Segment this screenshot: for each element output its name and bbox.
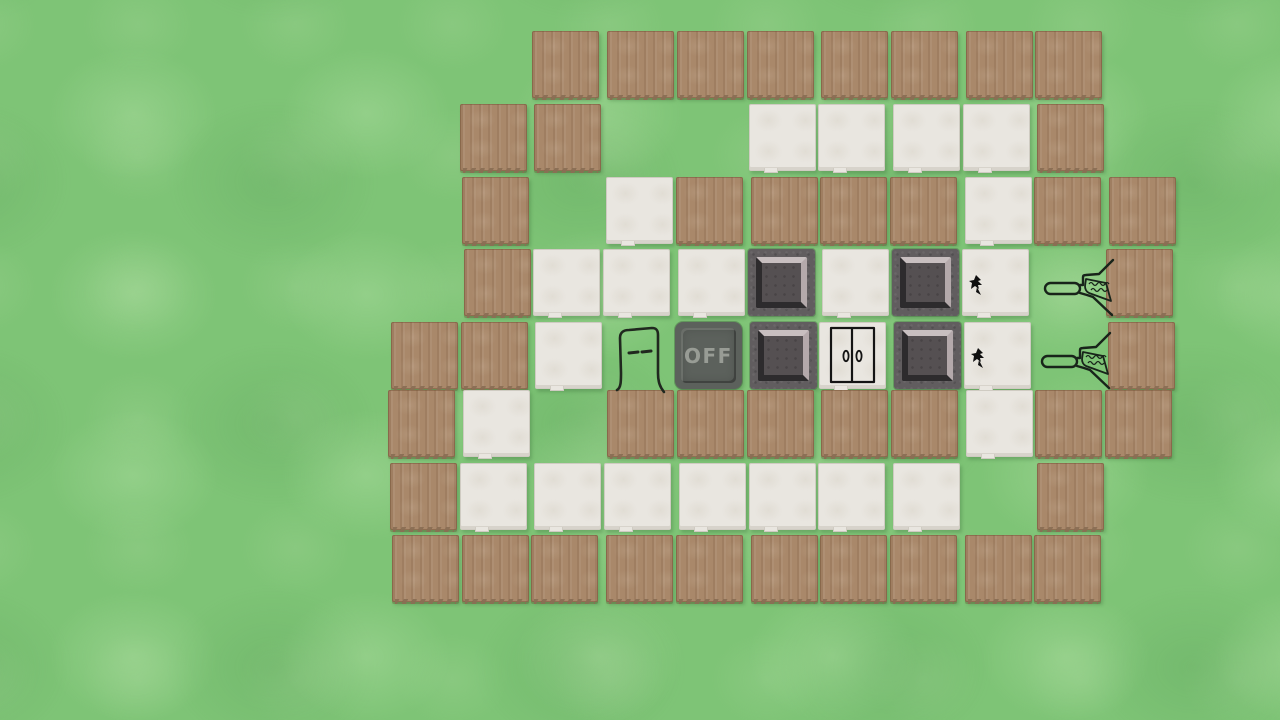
wood-tile: [534, 104, 601, 171]
wood-tile: [751, 535, 818, 602]
wood-tile: [1037, 104, 1104, 171]
player-sprite-svg: [614, 323, 666, 397]
wood-tile: [391, 322, 458, 389]
wood-tile: [1109, 177, 1176, 244]
wood-tile: [890, 535, 957, 602]
wood-tile: [747, 390, 814, 457]
wood-tile: [1108, 322, 1175, 389]
plate-tile[interactable]: [748, 249, 815, 316]
off-button-tile[interactable]: OFF: [675, 322, 742, 389]
wood-tile: [965, 535, 1032, 602]
floor-tile: [749, 463, 816, 530]
wood-tile: [464, 249, 531, 316]
floor-tile: [893, 463, 960, 530]
wood-tile: [676, 535, 743, 602]
floor-tile: [533, 249, 600, 316]
wood-tile: [532, 31, 599, 98]
game-board: OFF: [0, 0, 1280, 720]
floor-tile: [606, 177, 673, 244]
floor-tile: [965, 177, 1032, 244]
wood-tile: [461, 322, 528, 389]
wood-tile: [607, 31, 674, 98]
floor-tile: [963, 104, 1030, 171]
wood-tile: [460, 104, 527, 171]
wood-tile: [1037, 463, 1104, 530]
wood-tile: [1105, 390, 1172, 457]
double-door-icon[interactable]: [819, 322, 886, 389]
wood-tile: [821, 31, 888, 98]
floor-tile: [460, 463, 527, 530]
plate-tile[interactable]: [894, 322, 961, 389]
wood-tile: [820, 535, 887, 602]
bug-sprite-svg: [969, 275, 985, 297]
wood-tile: [606, 535, 673, 602]
floor-tile: [818, 104, 885, 171]
floor-tile: [822, 249, 889, 316]
wood-tile: [388, 390, 455, 457]
wood-tile: [821, 390, 888, 457]
wood-tile: [751, 177, 818, 244]
wood-tile: [390, 463, 457, 530]
floor-tile: [679, 463, 746, 530]
wood-tile: [1035, 390, 1102, 457]
wood-tile: [1034, 535, 1101, 602]
floor-tile: [604, 463, 671, 530]
wood-tile: [531, 535, 598, 602]
double-door-sprite-svg: [819, 322, 886, 389]
floor-tile: [893, 104, 960, 171]
plate-tile[interactable]: [750, 322, 817, 389]
wood-tile: [677, 390, 744, 457]
bug-sprite-svg: [971, 348, 987, 370]
floor-tile: [534, 463, 601, 530]
broom-icon[interactable]: [1039, 329, 1113, 391]
wood-tile: [462, 177, 529, 244]
wood-tile: [1035, 31, 1102, 98]
floor-tile: [818, 463, 885, 530]
wood-tile: [890, 177, 957, 244]
wood-tile: [1034, 177, 1101, 244]
broom-icon[interactable]: [1042, 256, 1116, 318]
bug-icon[interactable]: [969, 275, 985, 297]
off-button-label: OFF: [684, 346, 733, 366]
floor-tile: [535, 322, 602, 389]
floor-tile: [463, 390, 530, 457]
wood-tile: [392, 535, 459, 602]
wood-tile: [747, 31, 814, 98]
wood-tile: [891, 390, 958, 457]
bug-icon[interactable]: [971, 348, 987, 370]
floor-tile: [678, 249, 745, 316]
wood-tile: [891, 31, 958, 98]
wood-tile: [462, 535, 529, 602]
wood-tile: [820, 177, 887, 244]
broom-sprite-svg: [1042, 256, 1116, 318]
player-character[interactable]: [614, 323, 666, 397]
broom-sprite-svg: [1039, 329, 1113, 391]
floor-tile: [966, 390, 1033, 457]
wood-tile: [966, 31, 1033, 98]
floor-tile: [749, 104, 816, 171]
plate-tile[interactable]: [892, 249, 959, 316]
floor-tile: [603, 249, 670, 316]
wood-tile: [607, 390, 674, 457]
wood-tile: [677, 31, 744, 98]
wood-tile: [676, 177, 743, 244]
